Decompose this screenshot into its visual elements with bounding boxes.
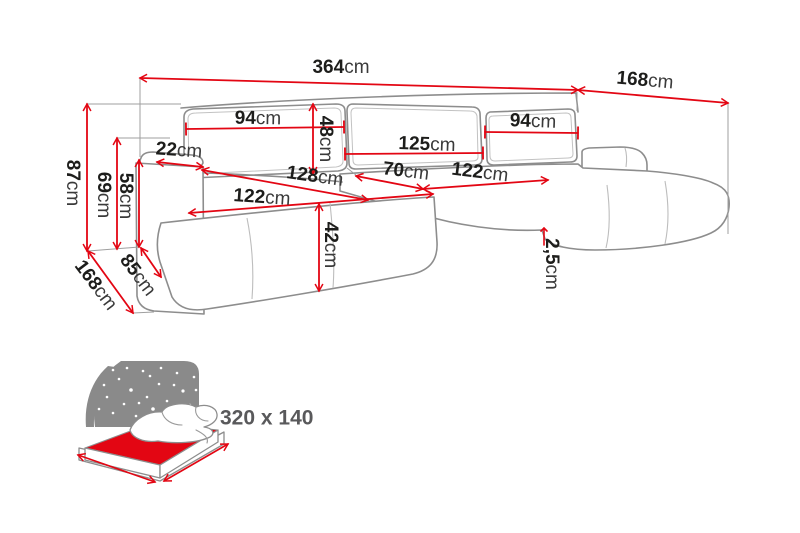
sleeping-function-icon: 320 x 140: [78, 361, 313, 482]
sleeping-area-label: 320 x 140: [220, 407, 313, 430]
dim-back-cushion-middle-width-label: 125cm: [398, 133, 456, 156]
dim-seat-back-height-label: 58cm: [116, 173, 137, 219]
dim-left-section-depth-label: 168cm: [70, 256, 121, 314]
dim-right-section-depth-line: [578, 90, 728, 103]
dim-seat-width-left-label: 122cm: [233, 185, 291, 210]
dim-seat-height-label: 42cm: [321, 222, 342, 268]
dim-total-width-label: 364cm: [312, 57, 369, 78]
floor-edge-front: [133, 312, 154, 313]
diagram-canvas: 364cm 168cm 87cm 69cm 58cm 22cm 168cm 85…: [0, 0, 800, 533]
dim-armrest-height-label: 69cm: [94, 172, 115, 218]
sofa-dimension-diagram: 364cm 168cm 87cm 69cm 58cm 22cm 168cm 85…: [0, 0, 800, 533]
dim-total-width-line: [140, 78, 578, 90]
dim-armrest-width-label: 22cm: [155, 138, 203, 162]
dim-seat-edge-step-label: 2,5cm: [542, 238, 563, 290]
dim-back-cushion-right-width-line: [485, 132, 578, 133]
dim-back-cushion-left-width-label: 94cm: [235, 107, 282, 129]
dim-right-section-depth-label: 168cm: [616, 67, 675, 93]
dim-back-cushion-right-width-label: 94cm: [509, 110, 556, 133]
dim-back-cushion-height-label: 48cm: [316, 116, 337, 162]
dim-total-height-label: 87cm: [63, 160, 84, 206]
sofa-outline: [88, 93, 729, 314]
